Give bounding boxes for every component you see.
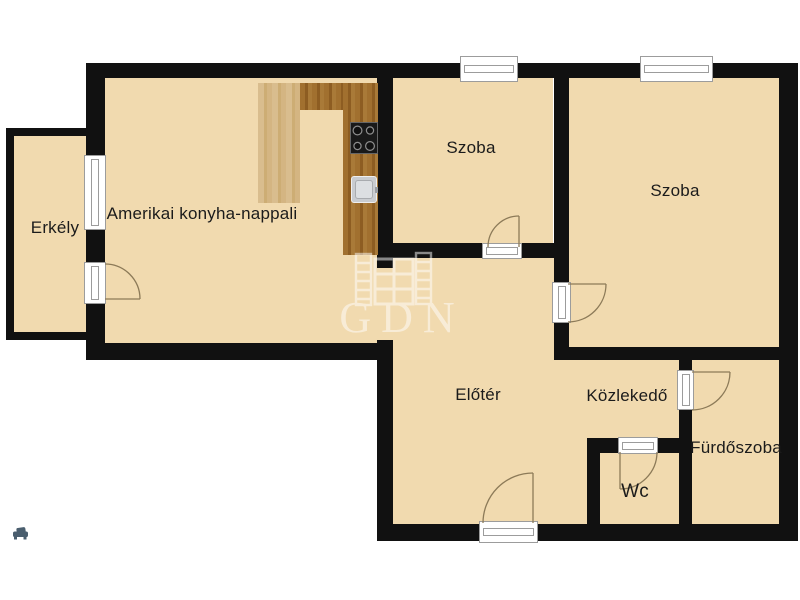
window-balcony: [84, 155, 106, 230]
label-bathroom: Fürdőszoba: [690, 438, 782, 458]
door-bathroom: [677, 370, 694, 410]
wall-top-left: [86, 63, 460, 78]
door-frame: [91, 266, 99, 300]
sofa-icon: [13, 527, 28, 540]
wall-central-upper: [377, 78, 393, 268]
door-frame: [622, 442, 654, 450]
window-room2: [640, 56, 713, 82]
label-wc: Wc: [621, 481, 649, 503]
door-frame: [483, 528, 534, 536]
room-2-floor: [569, 78, 779, 347]
wall-left-mid: [86, 230, 105, 262]
wall-left-upper: [86, 63, 105, 155]
passage-floor: [377, 268, 393, 340]
door-frame: [486, 247, 518, 255]
label-room2: Szoba: [650, 181, 699, 201]
stove: [350, 122, 378, 154]
wall-rooms-divider-a: [554, 63, 569, 282]
door-entrance: [479, 521, 538, 543]
wall-balcony-left: [6, 128, 14, 340]
door-room1: [482, 243, 522, 259]
wall-bottom-right: [537, 524, 798, 541]
kitchen-island: [258, 83, 300, 203]
door-room2: [552, 282, 571, 323]
faucet-icon: [375, 187, 378, 193]
wall-central-lower: [377, 340, 393, 541]
wall-room1-bottom-a: [377, 243, 482, 258]
sink-basin: [355, 180, 373, 199]
label-balcony: Erkély: [31, 218, 79, 238]
wall-right: [779, 63, 798, 541]
wall-balcony-bottom: [6, 332, 86, 340]
door-frame: [558, 286, 566, 319]
window-room1: [460, 56, 518, 82]
wall-wc-west: [587, 438, 600, 541]
wall-bottom-left: [378, 524, 480, 541]
door-balcony: [84, 262, 106, 304]
wall-bath-west-a: [679, 347, 692, 370]
label-room1: Szoba: [446, 138, 495, 158]
wall-bath-west-b: [679, 410, 692, 541]
kitchen-counter-top: [300, 83, 343, 110]
kitchen-counter-right: [343, 83, 378, 255]
wall-balcony-top: [6, 128, 86, 136]
wall-living-bottom: [86, 343, 393, 360]
label-hall: Előtér: [455, 385, 501, 405]
sink: [351, 176, 377, 203]
door-wc: [618, 437, 658, 454]
wall-top-mid: [518, 63, 640, 78]
window-frame: [644, 65, 709, 73]
window-frame: [91, 159, 99, 226]
wall-wc-top-b: [658, 438, 679, 453]
wall-room2-bottom: [554, 347, 798, 360]
floor-plan: GDN Erkély Amerikai konyha-nappali Szoba…: [0, 0, 800, 600]
room-1-floor: [393, 78, 553, 243]
door-frame: [682, 374, 690, 406]
label-living: Amerikai konyha-nappali: [107, 204, 298, 224]
label-corridor: Közlekedő: [586, 386, 667, 406]
window-frame: [464, 65, 514, 73]
